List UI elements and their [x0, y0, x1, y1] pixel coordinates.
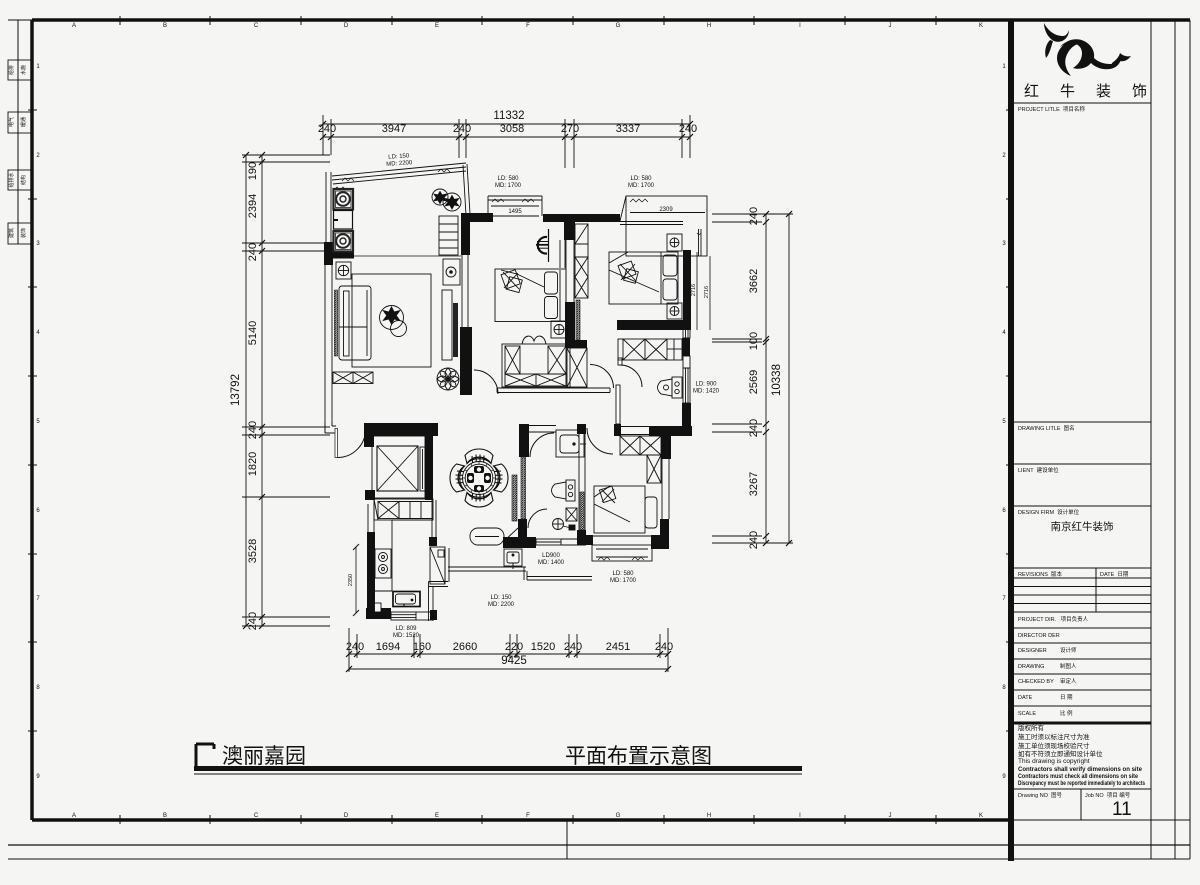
svg-text:3267: 3267	[748, 472, 760, 496]
svg-text:C: C	[254, 23, 259, 29]
svg-text:3662: 3662	[748, 269, 760, 293]
svg-text:CHECKED BY: CHECKED BY	[1018, 679, 1054, 685]
svg-text:南京红牛装饰: 南京红牛装饰	[1051, 520, 1114, 533]
svg-text:11332: 11332	[493, 110, 524, 122]
svg-text:3058: 3058	[500, 123, 524, 135]
svg-text:3947: 3947	[382, 123, 406, 135]
svg-text:G: G	[616, 813, 621, 819]
svg-text:A: A	[72, 813, 76, 819]
svg-text:2716: 2716	[691, 284, 697, 296]
svg-text:水施: 水施	[20, 65, 27, 75]
svg-text:2394: 2394	[247, 194, 259, 218]
svg-text:J: J	[889, 23, 892, 29]
svg-text:220: 220	[505, 641, 523, 653]
svg-text:日 期: 日 期	[1060, 694, 1073, 701]
svg-text:MD: 1420: MD: 1420	[693, 389, 720, 395]
svg-text:MD: 1700: MD: 1700	[628, 183, 655, 189]
svg-text:2350: 2350	[348, 574, 354, 586]
svg-text:设计师: 设计师	[1060, 646, 1077, 654]
svg-text:1820: 1820	[247, 452, 259, 476]
svg-text:审定人: 审定人	[1060, 677, 1077, 685]
svg-text:190: 190	[247, 162, 259, 180]
svg-text:制图人: 制图人	[1060, 662, 1077, 670]
svg-text:DRAWING: DRAWING	[1018, 664, 1044, 670]
svg-text:240: 240	[318, 123, 336, 135]
svg-text:2451: 2451	[606, 641, 630, 653]
svg-text:LD: 580: LD: 580	[630, 176, 652, 182]
svg-text:This drawing is copyright: This drawing is copyright	[1018, 758, 1090, 765]
svg-text:D: D	[344, 23, 349, 29]
svg-text:240: 240	[247, 421, 259, 439]
svg-text:MD: 1400: MD: 1400	[538, 560, 565, 566]
svg-text:MD: 1700: MD: 1700	[610, 578, 637, 584]
svg-text:MD: 1700: MD: 1700	[495, 183, 522, 189]
svg-text:1495: 1495	[508, 209, 522, 215]
svg-text:给排: 给排	[8, 65, 15, 75]
svg-text:DIRECTOR DER: DIRECTOR DER	[1018, 633, 1060, 639]
svg-text:红牛装饰: 红牛装饰	[1024, 83, 1168, 100]
svg-text:给排水: 给排水	[8, 172, 15, 187]
svg-text:PROJECT LITLE 项目名称: PROJECT LITLE 项目名称	[1018, 105, 1085, 113]
svg-text:K: K	[979, 813, 983, 819]
svg-text:240: 240	[453, 123, 471, 135]
svg-text:Discrepancy must be reported i: Discrepancy must be reported immediately…	[1018, 780, 1145, 787]
svg-text:K: K	[979, 23, 983, 29]
svg-text:D: D	[344, 813, 349, 819]
svg-text:LD: 150: LD: 150	[490, 595, 512, 601]
svg-text:H: H	[707, 23, 711, 29]
svg-text:240: 240	[247, 243, 259, 261]
svg-text:1520: 1520	[531, 641, 555, 653]
svg-text:澳丽嘉园: 澳丽嘉园	[222, 745, 306, 768]
svg-text:REVISIONS 版本: REVISIONS 版本	[1018, 570, 1063, 578]
svg-text:LD: 809: LD: 809	[395, 626, 417, 632]
svg-text:100: 100	[748, 332, 760, 350]
svg-text:暖通: 暖通	[20, 117, 27, 127]
svg-text:建筑: 建筑	[8, 228, 15, 238]
svg-text:240: 240	[247, 612, 259, 630]
svg-text:B: B	[163, 813, 167, 819]
svg-text:施工时须以标注尺寸为准: 施工时须以标注尺寸为准	[1018, 732, 1090, 741]
svg-text:MD: 2200: MD: 2200	[488, 602, 515, 608]
svg-text:Contractors must check all dim: Contractors must check all dimensions on…	[1018, 773, 1138, 780]
svg-text:E: E	[435, 23, 439, 29]
svg-text:2660: 2660	[453, 641, 477, 653]
svg-text:1694: 1694	[376, 641, 400, 653]
svg-text:F: F	[526, 813, 530, 819]
svg-text:版权所有: 版权所有	[1018, 723, 1045, 732]
svg-text:结构: 结构	[20, 175, 27, 185]
svg-text:3337: 3337	[616, 123, 640, 135]
svg-text:Contractors shall verify dimen: Contractors shall verify dimensions on s…	[1018, 766, 1142, 773]
svg-text:11: 11	[1112, 799, 1132, 820]
svg-text:J: J	[889, 813, 892, 819]
svg-text:2716: 2716	[704, 286, 710, 298]
svg-text:Drawing NO 图号: Drawing NO 图号	[1018, 791, 1063, 799]
svg-text:G: G	[616, 23, 621, 29]
svg-text:240: 240	[748, 531, 760, 549]
svg-text:LD900: LD900	[542, 553, 560, 559]
svg-text:LIENT 建设单位: LIENT 建设单位	[1018, 466, 1059, 474]
svg-text:270: 270	[561, 123, 579, 135]
svg-text:9425: 9425	[501, 655, 527, 667]
svg-text:Job NO 项目 编号: Job NO 项目 编号	[1085, 791, 1131, 799]
svg-text:C: C	[254, 813, 259, 819]
svg-text:DATE: DATE	[1018, 695, 1033, 701]
svg-text:A: A	[72, 23, 76, 29]
svg-text:LD: 900: LD: 900	[695, 382, 717, 388]
svg-text:比 例: 比 例	[1060, 709, 1073, 717]
svg-text:DESIGNER: DESIGNER	[1018, 648, 1047, 654]
svg-text:MD: 1520: MD: 1520	[393, 633, 420, 639]
svg-text:3528: 3528	[247, 539, 259, 563]
svg-text:LD: 580: LD: 580	[612, 571, 634, 577]
svg-text:施工单位须现场校验尺寸: 施工单位须现场校验尺寸	[1018, 741, 1090, 750]
svg-text:装饰: 装饰	[20, 228, 27, 238]
svg-text:B: B	[163, 23, 167, 29]
svg-text:240: 240	[748, 419, 760, 437]
svg-text:SCALE: SCALE	[1018, 711, 1036, 717]
svg-text:F: F	[526, 23, 530, 29]
svg-text:PROJECT DIR. 项目负责人: PROJECT DIR. 项目负责人	[1018, 615, 1089, 623]
svg-text:DRAWING LITLE 图名: DRAWING LITLE 图名	[1018, 424, 1075, 432]
svg-text:LD: 580: LD: 580	[497, 176, 519, 182]
svg-text:H: H	[707, 813, 711, 819]
svg-text:E: E	[435, 813, 439, 819]
svg-text:DESIGN FIRM 设计单位: DESIGN FIRM 设计单位	[1018, 508, 1080, 516]
svg-text:10338: 10338	[771, 364, 783, 396]
svg-text:2569: 2569	[748, 370, 760, 394]
svg-text:如有不符须立即通知设计单位: 如有不符须立即通知设计单位	[1018, 749, 1103, 758]
svg-text:13792: 13792	[230, 374, 242, 406]
svg-text:平面布置示意图: 平面布置示意图	[565, 745, 712, 768]
svg-text:电气: 电气	[8, 117, 15, 127]
svg-text:DATE 日期: DATE 日期	[1100, 571, 1129, 578]
svg-text:5140: 5140	[247, 321, 259, 345]
